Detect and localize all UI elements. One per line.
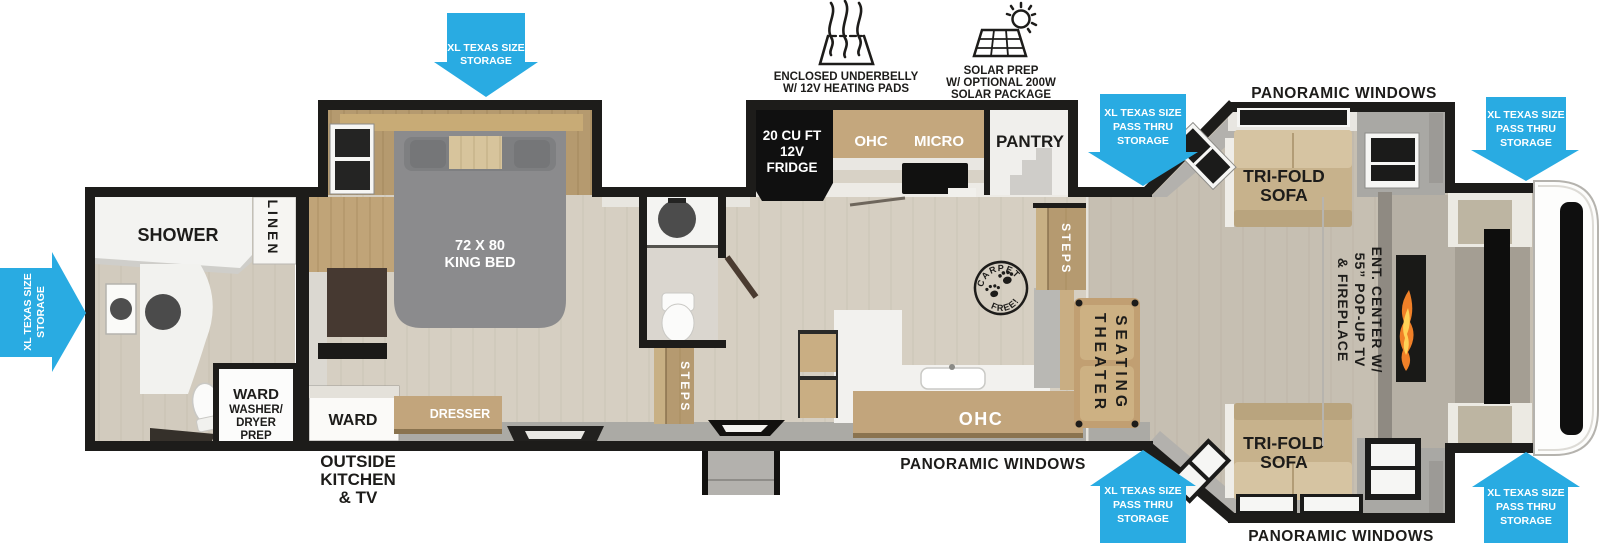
svg-text:& TV: & TV (339, 488, 378, 507)
svg-text:MICRO: MICRO (914, 133, 964, 150)
svg-text:SEATING: SEATING (1112, 315, 1129, 411)
svg-text:TRI-FOLD: TRI-FOLD (1243, 433, 1325, 453)
svg-text:DRESSER: DRESSER (430, 407, 490, 421)
svg-text:STEPS: STEPS (1059, 223, 1073, 275)
svg-text:WARD: WARD (329, 412, 378, 429)
svg-text:OHC: OHC (959, 409, 1004, 429)
svg-text:FRIDGE: FRIDGE (766, 160, 817, 175)
svg-text:THEATER: THEATER (1091, 313, 1108, 413)
svg-text:W/ 12V HEATING PADS: W/ 12V HEATING PADS (783, 83, 909, 95)
svg-text:SOLAR PACKAGE: SOLAR PACKAGE (951, 89, 1051, 101)
svg-text:72 X 80: 72 X 80 (455, 238, 505, 254)
svg-text:LINEN: LINEN (265, 200, 281, 257)
svg-text:WASHER/: WASHER/ (229, 404, 283, 416)
svg-text:55” POP-UP TV: 55” POP-UP TV (1352, 253, 1368, 368)
svg-text:WARD: WARD (233, 386, 279, 403)
svg-text:STEPS: STEPS (678, 361, 692, 413)
svg-text:OUTSIDE: OUTSIDE (320, 452, 396, 471)
svg-text:OHC: OHC (854, 133, 888, 150)
svg-text:XL TEXAS SIZE: XL TEXAS SIZE (22, 273, 34, 350)
svg-text:PANTRY: PANTRY (996, 132, 1065, 151)
svg-text:PASS THRU: PASS THRU (1113, 121, 1173, 133)
svg-text:DRYER: DRYER (236, 417, 277, 429)
svg-text:PASS THRU: PASS THRU (1113, 499, 1173, 511)
svg-text:STORAGE: STORAGE (460, 55, 512, 67)
svg-text:KING BED: KING BED (445, 255, 516, 271)
svg-text:XL TEXAS SIZE: XL TEXAS SIZE (1104, 107, 1181, 119)
svg-text:PANORAMIC WINDOWS: PANORAMIC WINDOWS (900, 456, 1086, 473)
svg-text:PASS THRU: PASS THRU (1496, 123, 1556, 135)
svg-text:STORAGE: STORAGE (1500, 515, 1552, 527)
svg-text:PANORAMIC WINDOWS: PANORAMIC WINDOWS (1251, 85, 1437, 102)
svg-text:SOLAR PREP: SOLAR PREP (964, 65, 1039, 77)
svg-text:SOFA: SOFA (1260, 452, 1308, 472)
svg-text:XL TEXAS SIZE: XL TEXAS SIZE (1487, 487, 1564, 499)
svg-text:PASS THRU: PASS THRU (1496, 501, 1556, 513)
svg-text:STORAGE: STORAGE (1117, 513, 1169, 525)
svg-text:XL TEXAS SIZE: XL TEXAS SIZE (1104, 485, 1181, 497)
svg-text:KITCHEN: KITCHEN (320, 470, 396, 489)
svg-text:ENT. CENTER W/: ENT. CENTER W/ (1369, 247, 1385, 374)
svg-text:SHOWER: SHOWER (138, 225, 219, 245)
svg-text:STORAGE: STORAGE (35, 286, 47, 338)
svg-text:PANORAMIC WINDOWS: PANORAMIC WINDOWS (1248, 528, 1434, 543)
svg-text:PREP: PREP (240, 430, 272, 442)
svg-text:TRI-FOLD: TRI-FOLD (1243, 166, 1325, 186)
svg-text:STORAGE: STORAGE (1500, 137, 1552, 149)
svg-text:STORAGE: STORAGE (1117, 135, 1169, 147)
svg-text:20 CU FT: 20 CU FT (763, 128, 822, 143)
svg-text:XL TEXAS SIZE: XL TEXAS SIZE (1487, 109, 1564, 121)
svg-text:ENCLOSED UNDERBELLY: ENCLOSED UNDERBELLY (774, 71, 919, 83)
svg-text:& FIREPLACE: & FIREPLACE (1335, 258, 1351, 362)
svg-text:SOFA: SOFA (1260, 185, 1308, 205)
svg-text:12V: 12V (780, 144, 804, 159)
svg-text:XL TEXAS SIZE: XL TEXAS SIZE (447, 42, 524, 54)
svg-text:W/ OPTIONAL 200W: W/ OPTIONAL 200W (946, 77, 1056, 89)
